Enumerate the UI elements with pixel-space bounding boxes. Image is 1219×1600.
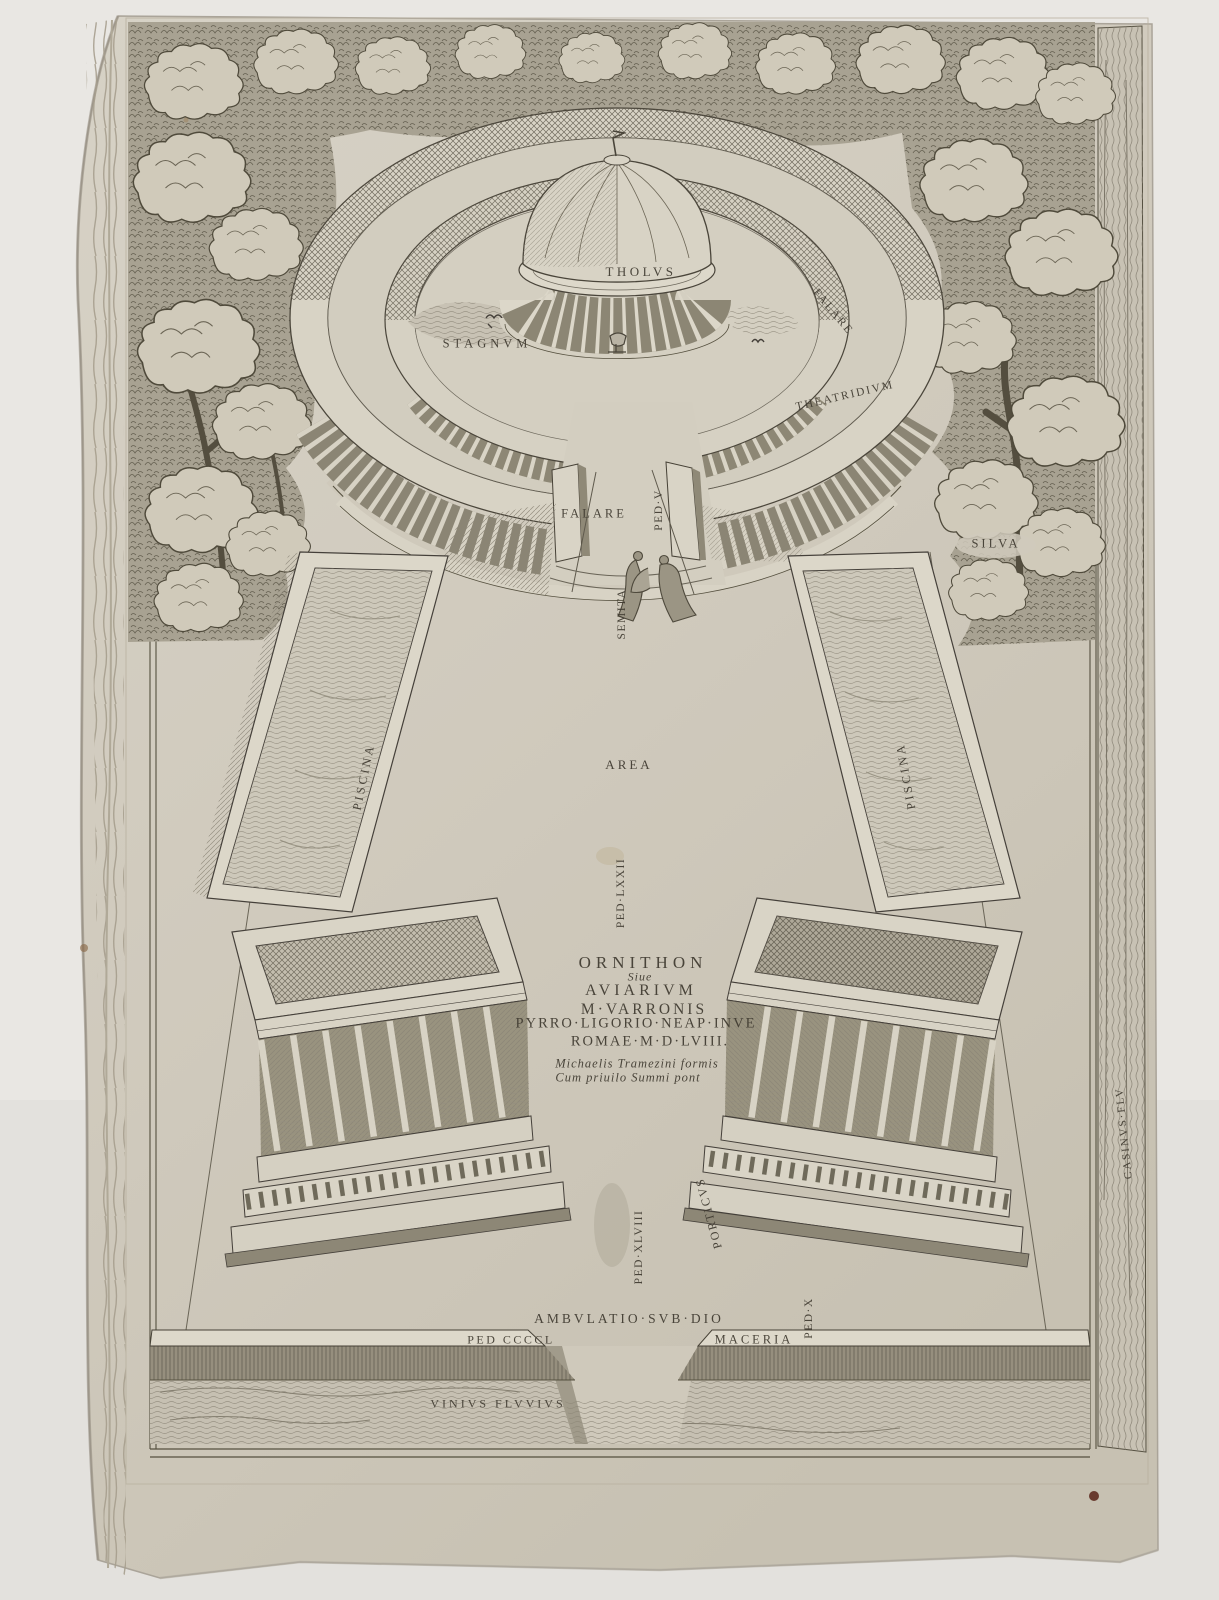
engraving-scene [0,0,1219,1600]
engraving-print: THOLVS STAGNVM FALARE THEATRIDIVM FALARE… [0,0,1219,1600]
silva-clearing [956,532,1036,558]
ground-shadow [594,1183,630,1267]
